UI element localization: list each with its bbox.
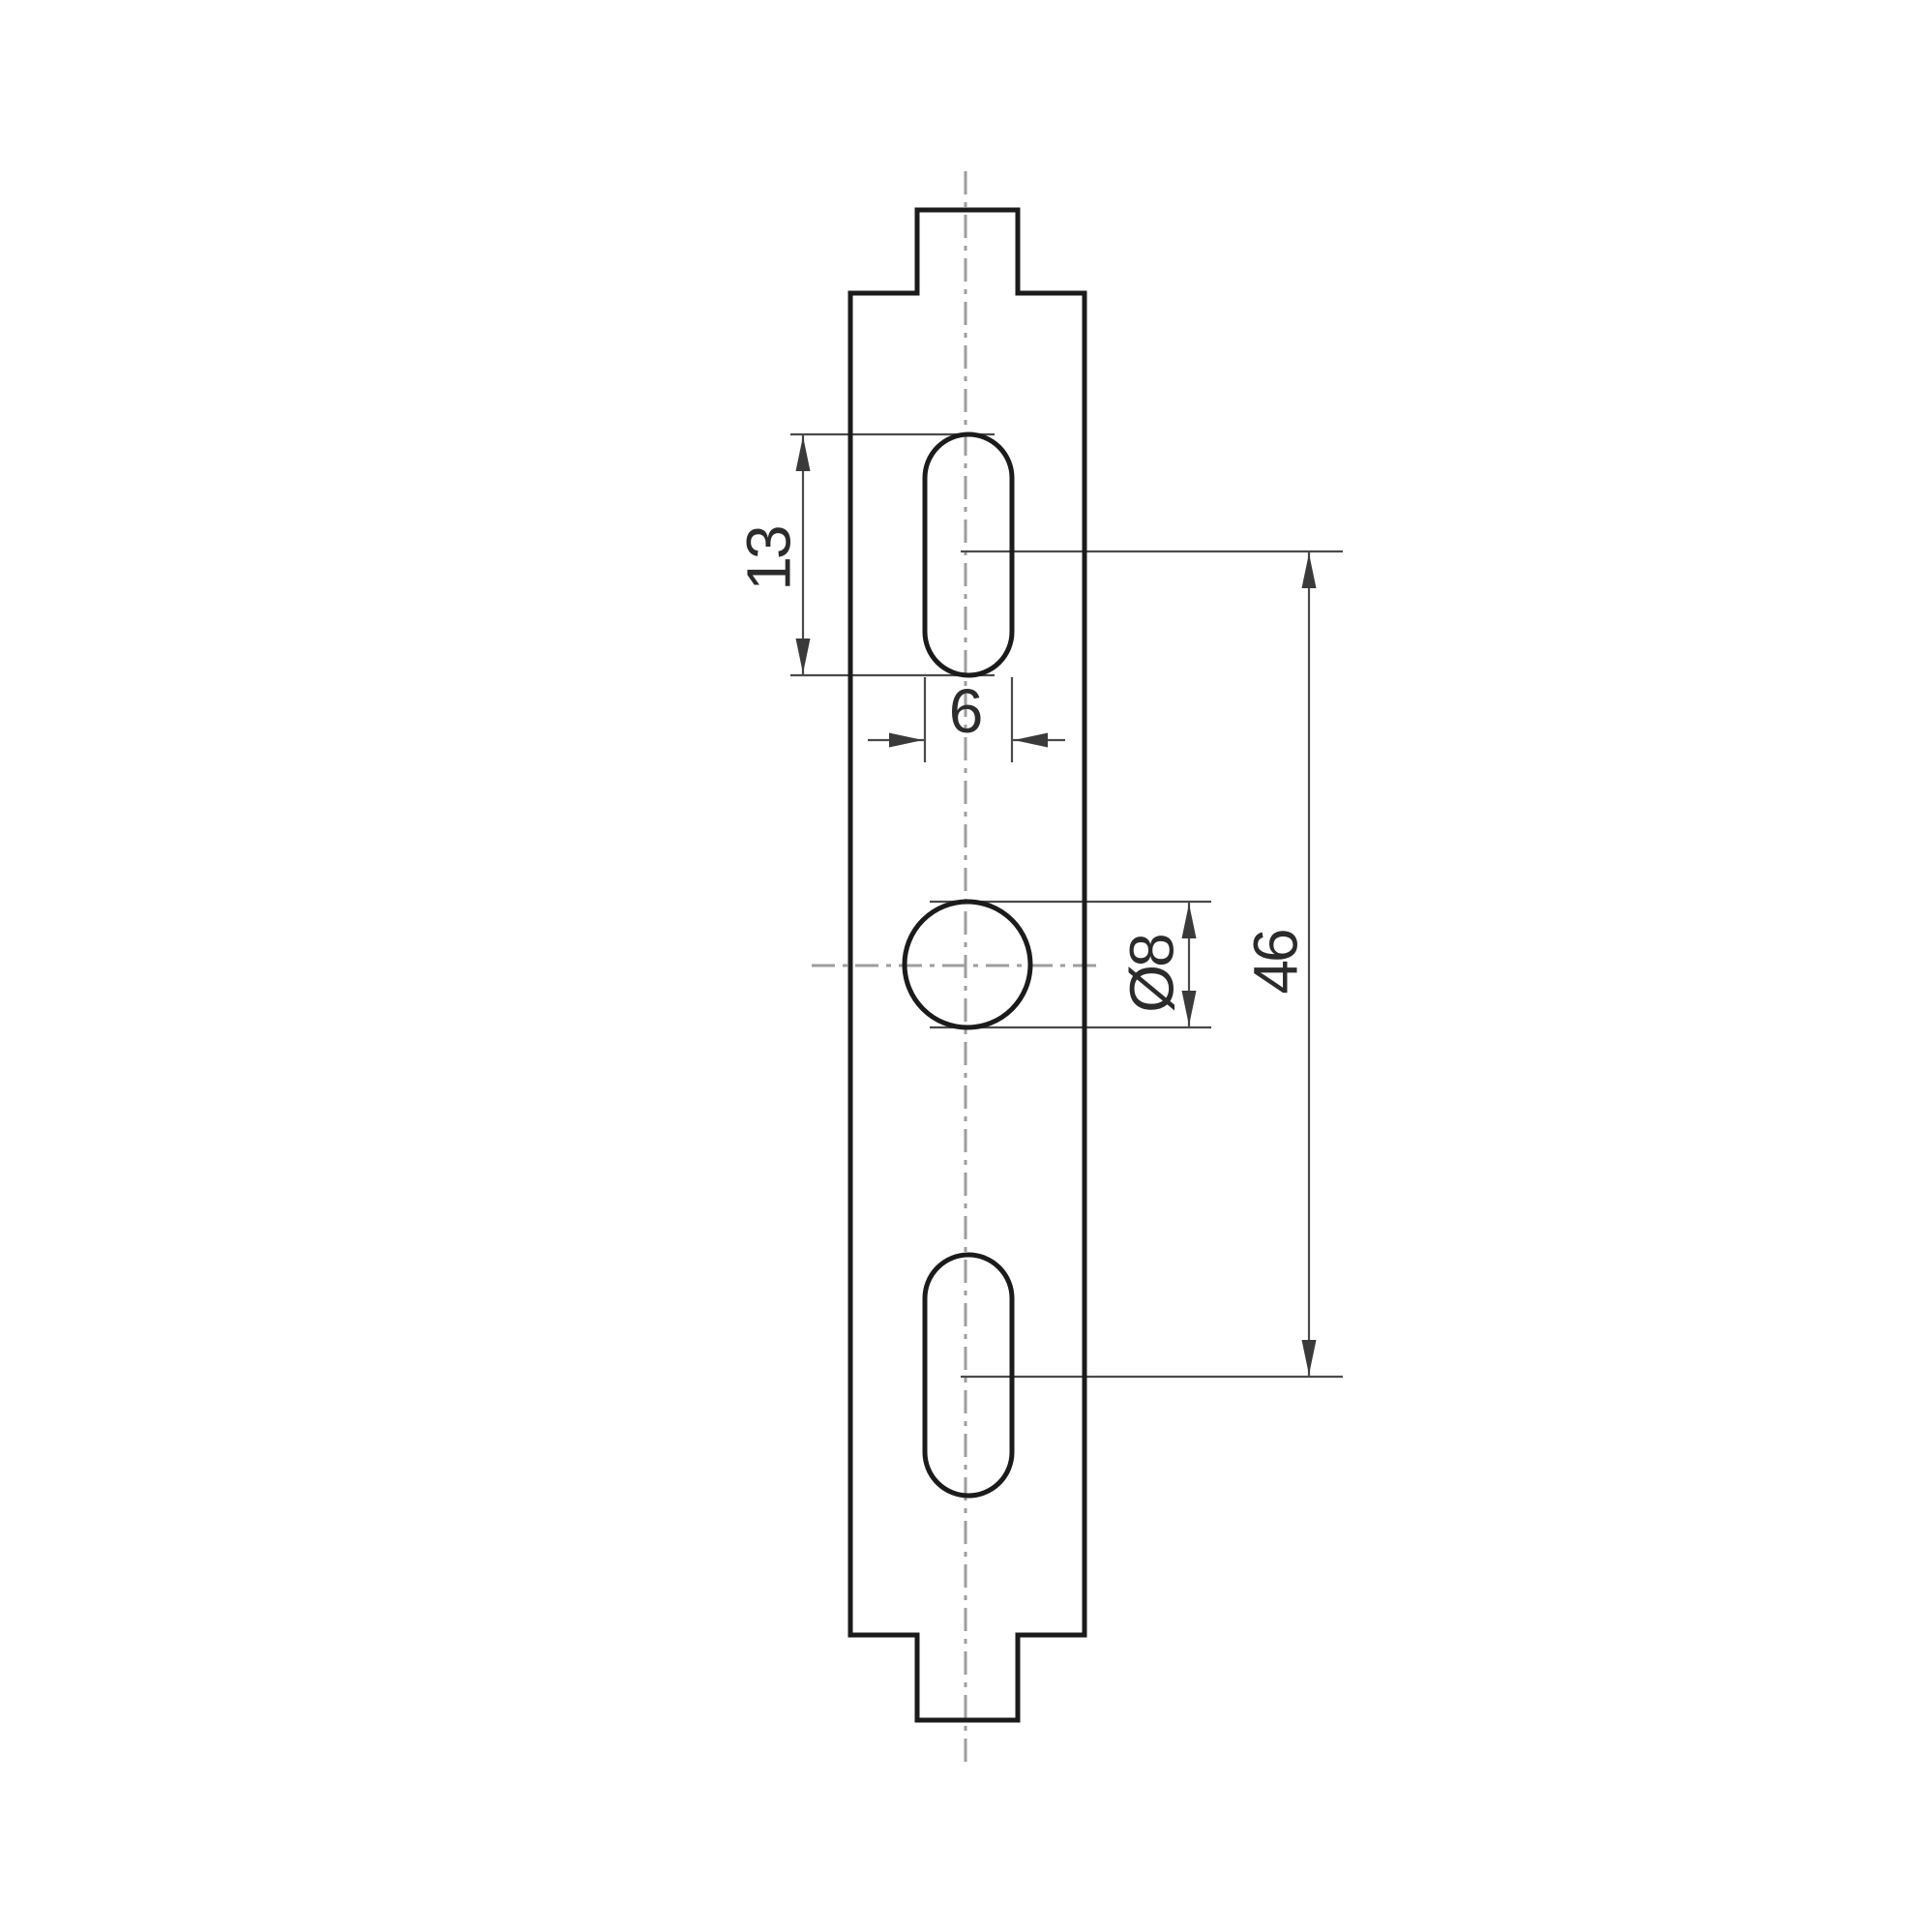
dim-label-hole-diameter: Ø8 <box>1116 936 1186 1013</box>
arrow-13-down-icon <box>796 639 811 673</box>
center-hole <box>905 902 1030 1027</box>
dimension-labels: 13 6 Ø8 46 <box>733 527 1310 1013</box>
arrow-46-up-icon <box>1302 553 1317 588</box>
dim-label-slot-length: 13 <box>733 527 803 591</box>
arrow-6-right-icon <box>889 733 923 748</box>
centerlines <box>812 171 1103 1769</box>
dimension-arrows <box>796 436 1317 1375</box>
arrow-8-up-icon <box>1182 904 1197 938</box>
dim-label-hole-spacing: 46 <box>1240 931 1310 995</box>
arrow-6-left-icon <box>1014 733 1048 748</box>
arrow-13-up-icon <box>796 436 811 471</box>
dimension-lines <box>790 434 1343 1377</box>
dim-label-slot-width: 6 <box>949 676 981 746</box>
bottom-slot <box>925 1255 1012 1496</box>
top-slot <box>925 434 1012 675</box>
technical-drawing-canvas: 13 6 Ø8 46 <box>0 0 1932 1932</box>
arrow-46-down-icon <box>1302 1340 1317 1375</box>
mounting-plate-drawing: 13 6 Ø8 46 <box>0 0 1932 1932</box>
